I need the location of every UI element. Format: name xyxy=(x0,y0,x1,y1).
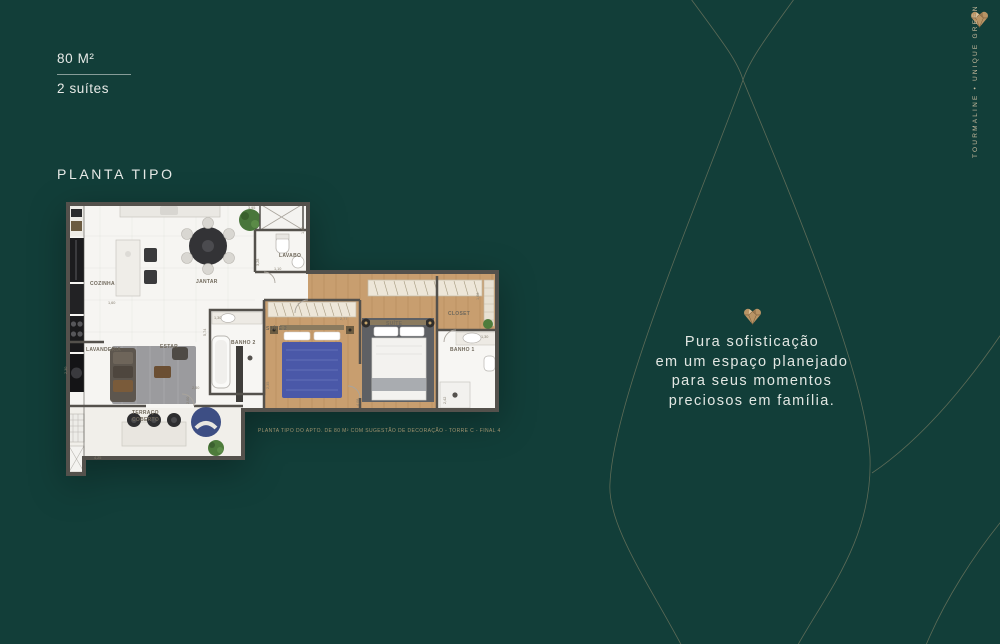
unit-area-label: 80 M² xyxy=(57,51,95,66)
dim-200: 2,00 xyxy=(186,397,190,404)
room-label-jantar: JANTAR xyxy=(196,279,218,285)
section-title: PLANTA TIPO xyxy=(57,166,175,182)
room-label-lavabo: LAVABO xyxy=(279,253,301,259)
room-label-cozinha: COZINHA xyxy=(90,281,115,287)
dim-235: 2,35 xyxy=(266,382,270,389)
unit-suites-label: 2 suítes xyxy=(57,81,109,96)
appliance-column xyxy=(69,206,84,472)
dim-408: 4,08 xyxy=(356,399,360,406)
dim-425: 4,25 xyxy=(94,456,101,460)
tagline-line-1: Pura sofisticação xyxy=(602,333,902,353)
dim-277: 2,77 xyxy=(340,317,347,321)
room-label-suite: SUÍTE xyxy=(386,319,403,327)
floor-plan-caption: PLANTA TIPO DO APTO. DE 80 M² COM SUGEST… xyxy=(258,428,501,434)
dim-142: 1,42 xyxy=(301,227,305,234)
tagline-line-2: em um espaço planejado xyxy=(602,353,902,373)
unit-divider xyxy=(57,74,131,75)
tagline-line-4: preciosos em família. xyxy=(602,392,902,412)
dim-110: 1,10 xyxy=(274,267,281,271)
room-label-suite2: SUÍTE 2 xyxy=(266,324,287,332)
dim-574: 5,74 xyxy=(203,329,207,336)
room-label-banho2: BANHO 2 xyxy=(231,340,256,346)
heart-gem-icon xyxy=(743,308,762,325)
dim-250: 2,50 xyxy=(192,386,199,390)
dim-395: 3,95 xyxy=(248,206,255,210)
dim-166: 1,66 xyxy=(476,293,480,300)
tagline-line-3: para seus momentos xyxy=(602,372,902,392)
room-label-lavanderia: LAVANDERIA xyxy=(86,347,121,353)
room-label-closet: CLOSET xyxy=(448,311,470,317)
room-label-banho1: BANHO 1 xyxy=(450,347,475,353)
dim-160: 1,60 xyxy=(108,301,115,305)
tagline-block: Pura sofisticação em um espaço planejado… xyxy=(602,308,902,411)
dim-328: 3,28 xyxy=(256,259,260,266)
dim-242: 2,42 xyxy=(443,397,447,404)
floor-plan: COZINHA JANTAR LAVABO LAVANDERIA ESTAR B… xyxy=(60,196,500,480)
room-label-terraco: TERRAÇO xyxy=(132,410,159,416)
room-label-estar: ESTAR xyxy=(160,344,178,350)
dim-230: 2,30 xyxy=(64,367,68,374)
brand-vertical-label: TOURMALINE • UNIQUE GREEN xyxy=(972,38,979,158)
dim-130a: 1,30 xyxy=(214,316,221,320)
dim-130b: 1,30 xyxy=(481,335,488,339)
room-label-coberto: COBERTO xyxy=(132,417,159,423)
brochure-page: { "brand": { "vertical_label": "TOURMALI… xyxy=(0,0,1000,644)
